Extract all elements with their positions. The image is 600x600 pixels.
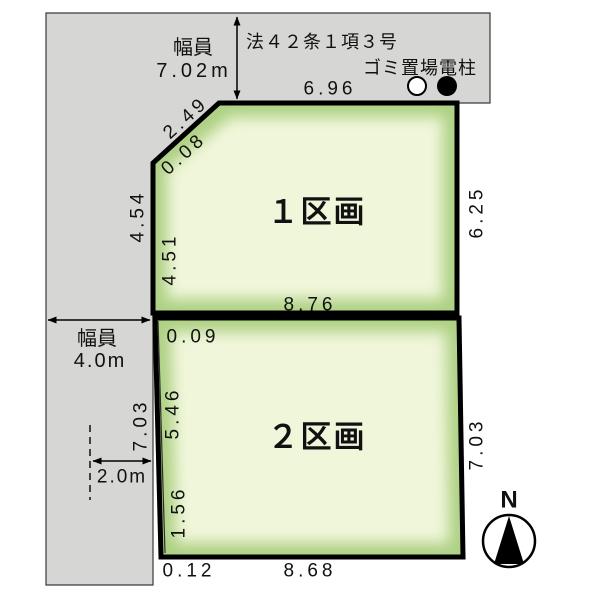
plot1-frontage-dim: 6.96 bbox=[304, 79, 357, 100]
land-plot-diagram: 幅員 7.02m 法４２条１項３号 ゴミ置場電柱 6.96 2.49 0.08 … bbox=[0, 0, 600, 600]
plot2-left-upper-dim: 5.46 bbox=[163, 387, 184, 440]
plot1-name: １区画 bbox=[268, 195, 367, 230]
garbage-pole-label: ゴミ置場電柱 bbox=[363, 58, 477, 78]
road-law-label: 法４２条１項３号 bbox=[246, 32, 398, 52]
plot1-bottom-dim: 8.76 bbox=[284, 295, 337, 316]
setback-dim: 2.0m bbox=[97, 467, 147, 488]
plot2-bottom-offset-dim: 0.12 bbox=[163, 561, 216, 582]
plot2-right-dim: 7.03 bbox=[467, 418, 488, 471]
plot1-right-dim: 6.25 bbox=[467, 186, 488, 239]
plot2-bottom-dim: 8.68 bbox=[284, 561, 337, 582]
left-road-width-label: 幅員 bbox=[77, 327, 117, 350]
plot2-left-road-dim: 7.03 bbox=[131, 399, 152, 452]
top-road-width-label: 幅員 bbox=[173, 36, 213, 59]
plot1-left-outer-dim: 4.54 bbox=[128, 190, 149, 243]
north-compass-icon: N bbox=[483, 487, 535, 568]
top-road-width-value: 7.02m bbox=[156, 60, 232, 82]
left-road-width-value: 4.0m bbox=[74, 350, 126, 372]
garbage-area-icon bbox=[408, 77, 426, 95]
plot2-name: ２区画 bbox=[268, 420, 367, 455]
north-label: N bbox=[500, 487, 517, 514]
diagram-canvas: 幅員 7.02m 法４２条１項３号 ゴミ置場電柱 6.96 2.49 0.08 … bbox=[0, 0, 600, 600]
utility-pole-icon bbox=[437, 76, 457, 96]
plot1-left-inner-dim: 4.51 bbox=[160, 233, 181, 286]
plot2-left-lower-dim: 1.56 bbox=[169, 486, 190, 539]
plot2-top-offset-dim: 0.09 bbox=[167, 327, 220, 348]
